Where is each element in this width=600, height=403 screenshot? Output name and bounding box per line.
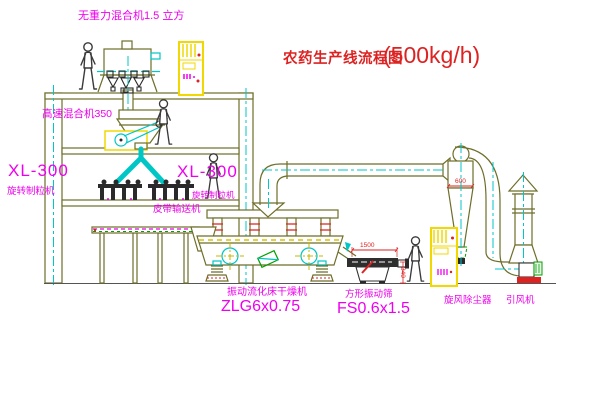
person-top-floor xyxy=(80,43,97,89)
rotary-granulators xyxy=(98,180,194,201)
control-cabinet-dryer xyxy=(431,228,457,286)
label-sieve-name: 方形振动筛 xyxy=(345,290,393,300)
dim-sieve-outlet-height: 340 xyxy=(399,267,406,278)
label-dryer-model: ZLG6x0.75 xyxy=(221,299,300,315)
label-granulator-left-name: 旋转制粒机 xyxy=(7,187,55,197)
label-granulator-left-model: XL-300 xyxy=(8,162,69,179)
label-granulator-right-name: 旋转制粒机 xyxy=(192,191,235,200)
exhaust-duct xyxy=(260,158,450,208)
label-sieve-model: FS0.6x1.5 xyxy=(337,301,410,317)
label-high-speed-mixer: 高速混合机350 xyxy=(42,109,112,120)
label-gravity-mixer: 无重力混合机1.5 立方 xyxy=(78,11,184,22)
dim-sieve-length: 1500 xyxy=(360,243,374,250)
belt-conveyor xyxy=(92,227,199,283)
label-cyclone: 旋风除尘器 xyxy=(444,296,492,306)
fluid-bed-dryer xyxy=(191,203,356,281)
person-ground-floor xyxy=(407,237,423,281)
label-fan: 引风机 xyxy=(506,296,535,306)
label-belt-conveyor: 皮带输送机 xyxy=(153,205,201,215)
vibrating-sieve xyxy=(347,247,409,284)
page-title-capacity: (500kg/h) xyxy=(383,44,480,67)
label-granulator-right-model: XL-300 xyxy=(177,163,238,180)
label-dryer-name: 振动流化床干燥机 xyxy=(227,288,307,298)
control-cabinet-top xyxy=(179,42,203,95)
pesticide-line-flow-diagram: 无重力混合机1.5 立方 高速混合机350 XL-300 旋转制粒机 XL-30… xyxy=(0,0,600,403)
induced-draft-fan xyxy=(517,262,542,283)
dim-cyclone-diameter: 600 xyxy=(455,179,466,186)
